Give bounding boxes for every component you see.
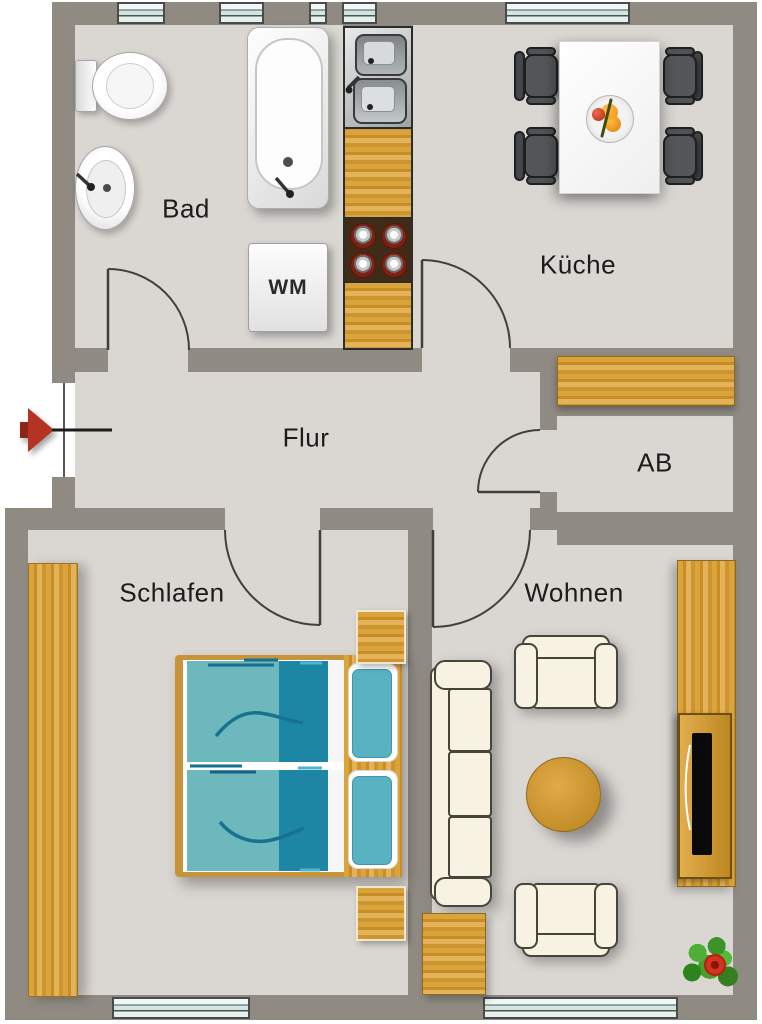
chair-seat (663, 54, 697, 98)
sofa (430, 660, 494, 907)
ab-sideboard (557, 356, 735, 406)
kitchen-sink-basin-bottom (353, 78, 407, 124)
entrance-arrow-head (28, 408, 54, 452)
wardrobe (28, 563, 78, 997)
room-label-wohnen: Wohnen (524, 578, 623, 609)
toilet-bowl-inner (106, 63, 154, 109)
sofa-cushion-1 (448, 688, 492, 752)
tv-screen (692, 733, 712, 855)
door-opening-kueche (422, 348, 510, 372)
door-opening-wohnen (433, 508, 530, 530)
armchair-top (514, 635, 618, 710)
chair-armrest (665, 47, 695, 56)
fruit-plate (586, 95, 634, 143)
toilet-bowl (92, 52, 168, 120)
chair-armrest (665, 176, 695, 185)
chair-seat (524, 54, 558, 98)
chair-armrest (526, 96, 556, 105)
armchair-bottom (514, 878, 618, 953)
nightstand-top (356, 610, 406, 664)
plant (682, 936, 738, 992)
sofa-armrest-bottom (434, 877, 492, 907)
room-label-schlafen: Schlafen (119, 578, 224, 609)
side-table (422, 913, 486, 995)
armchair-armrest-left (514, 883, 538, 949)
washing-machine-label: WM (268, 276, 307, 300)
stove-burner-4 (381, 252, 407, 278)
sofa-cushion-2 (448, 751, 492, 817)
dining-chair-bottom-left (514, 127, 562, 185)
bathtub-basin (255, 38, 323, 190)
window-kueche-large (505, 2, 630, 24)
toilet (75, 52, 167, 118)
bathroom-sink-drain (103, 184, 111, 192)
chair-armrest (665, 127, 695, 136)
window-schlafen (112, 997, 250, 1019)
door-opening-bad (108, 348, 188, 372)
chair-armrest (526, 47, 556, 56)
kitchen-sink-basin-top (355, 34, 407, 76)
floor-plan: WM (0, 0, 762, 1024)
kitchen-counter (343, 26, 413, 350)
room-label-bad: Bad (162, 194, 210, 225)
plant-flower (704, 954, 726, 976)
stove (345, 217, 411, 283)
bed-cushion-bottom (352, 776, 392, 865)
fruit-red (592, 108, 605, 121)
stove-burner-2 (381, 223, 407, 249)
room-label-flur: Flur (283, 423, 330, 454)
window-kueche-small (342, 2, 377, 24)
kitchen-sink-drain-top (368, 58, 374, 64)
bathroom-sink (75, 146, 135, 230)
window-bad-3 (309, 2, 327, 24)
room-label-ab: AB (637, 448, 673, 479)
wall-ab-bottom (557, 512, 733, 545)
window-bad-2 (219, 2, 264, 24)
stove-burner-1 (350, 223, 376, 249)
dining-table (559, 41, 660, 194)
chair-seat (663, 134, 697, 178)
window-bad-1 (117, 2, 165, 24)
washing-machine: WM (248, 243, 328, 332)
door-opening-ab (540, 430, 557, 492)
dining-chair-top-right (655, 47, 703, 105)
double-bed (175, 655, 402, 877)
kitchen-sink-basin-bottom-inner (361, 86, 395, 112)
bed-cushion-top (352, 669, 392, 758)
kitchen-sink-unit (345, 28, 411, 129)
armchair-armrest-right (594, 883, 618, 949)
chair-seat (524, 134, 558, 178)
dining-chair-top-left (514, 47, 562, 105)
sofa-armrest-top (434, 660, 492, 690)
armchair-armrest-left (514, 643, 538, 709)
door-opening-schlafen (225, 508, 320, 530)
window-wohnen (483, 997, 678, 1019)
chair-armrest (526, 127, 556, 136)
sofa-cushion-3 (448, 816, 492, 878)
entrance-arrow-icon (20, 408, 56, 452)
nightstand-bottom (356, 886, 406, 941)
coffee-table (526, 757, 601, 832)
dining-chair-bottom-right (655, 127, 703, 185)
chair-armrest (665, 96, 695, 105)
chair-armrest (526, 176, 556, 185)
stove-burner-3 (350, 252, 376, 278)
armchair-armrest-right (594, 643, 618, 709)
tv-board (677, 560, 736, 887)
room-label-kueche: Küche (540, 250, 616, 281)
bathtub (247, 27, 329, 209)
kitchen-sink-drain-bottom (367, 104, 373, 110)
tv-board-panel (678, 713, 732, 879)
